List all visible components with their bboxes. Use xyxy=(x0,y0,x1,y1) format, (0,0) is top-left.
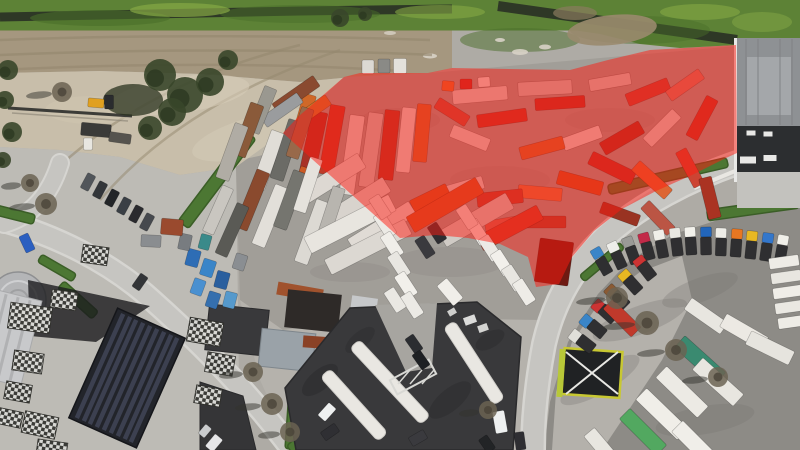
bush-tree-core xyxy=(140,124,153,137)
roof-vent xyxy=(747,131,756,136)
rust-shed-dark xyxy=(284,289,342,332)
bush-tree-core xyxy=(146,69,164,87)
truck xyxy=(84,138,93,150)
bare-tree-core xyxy=(642,318,653,329)
truck xyxy=(514,431,526,450)
bare-tree-core xyxy=(58,88,67,97)
grass-light xyxy=(130,3,230,17)
bare-tree-core xyxy=(26,179,34,187)
warehouse-ridge xyxy=(791,39,793,125)
truck xyxy=(730,239,742,258)
grass-light xyxy=(660,4,740,20)
bare-tree-core xyxy=(484,406,492,414)
truck xyxy=(670,237,683,256)
truck xyxy=(394,59,407,74)
warehouse-ridge xyxy=(779,39,781,125)
truck xyxy=(700,227,711,237)
pallet-stack xyxy=(7,302,52,334)
warehouse-ridge xyxy=(745,39,747,125)
grass-shade xyxy=(220,5,380,23)
truck xyxy=(715,228,726,238)
bare-tree-core xyxy=(714,373,723,382)
aerial-photo xyxy=(0,0,800,450)
bush-tree-core xyxy=(198,77,213,92)
bare-tree-core xyxy=(286,428,295,437)
bare-tree-core xyxy=(671,345,681,355)
bare-tree-core xyxy=(612,293,622,303)
truck xyxy=(777,234,790,246)
debris xyxy=(512,49,528,55)
truck xyxy=(141,234,162,247)
truck xyxy=(700,237,711,255)
debris xyxy=(495,38,505,42)
debris xyxy=(539,45,551,50)
bare-tree-core xyxy=(249,368,258,377)
truck xyxy=(160,218,183,236)
truck xyxy=(88,98,105,108)
dirt-patch xyxy=(553,6,597,20)
truck xyxy=(80,122,111,138)
truck xyxy=(669,227,681,238)
grass-light xyxy=(732,12,792,32)
grass-light xyxy=(395,5,485,19)
truck xyxy=(731,229,743,240)
roof-vent xyxy=(740,157,756,164)
bush-tree-core xyxy=(332,15,342,25)
bush-tree-core xyxy=(359,12,367,20)
truck xyxy=(746,230,758,241)
big-warehouse-roof-panel xyxy=(747,57,791,115)
truck xyxy=(653,229,666,241)
bare-tree-core xyxy=(41,199,51,209)
bush-tree-core xyxy=(160,107,175,122)
roof-vent xyxy=(764,132,773,137)
bush-tree-core xyxy=(4,129,15,140)
truck xyxy=(684,227,696,238)
truck xyxy=(745,240,758,259)
big-warehouse-apron xyxy=(737,172,800,208)
pallet-stack xyxy=(50,289,78,310)
truck xyxy=(685,237,697,256)
roof-vent xyxy=(764,155,777,161)
pallet-stack xyxy=(81,244,109,265)
grass-shade xyxy=(460,28,580,52)
warehouse-ridge xyxy=(757,39,759,125)
truck xyxy=(762,232,774,243)
truck xyxy=(362,60,374,74)
debris xyxy=(384,31,396,35)
bush-tree-core xyxy=(220,57,231,68)
aerial-screenshot xyxy=(0,0,800,450)
truck xyxy=(715,238,727,256)
pallet-stack xyxy=(12,350,44,374)
truck xyxy=(105,95,114,109)
bare-tree-core xyxy=(267,399,277,409)
bush-tree-core xyxy=(0,67,11,78)
truck xyxy=(378,59,390,73)
